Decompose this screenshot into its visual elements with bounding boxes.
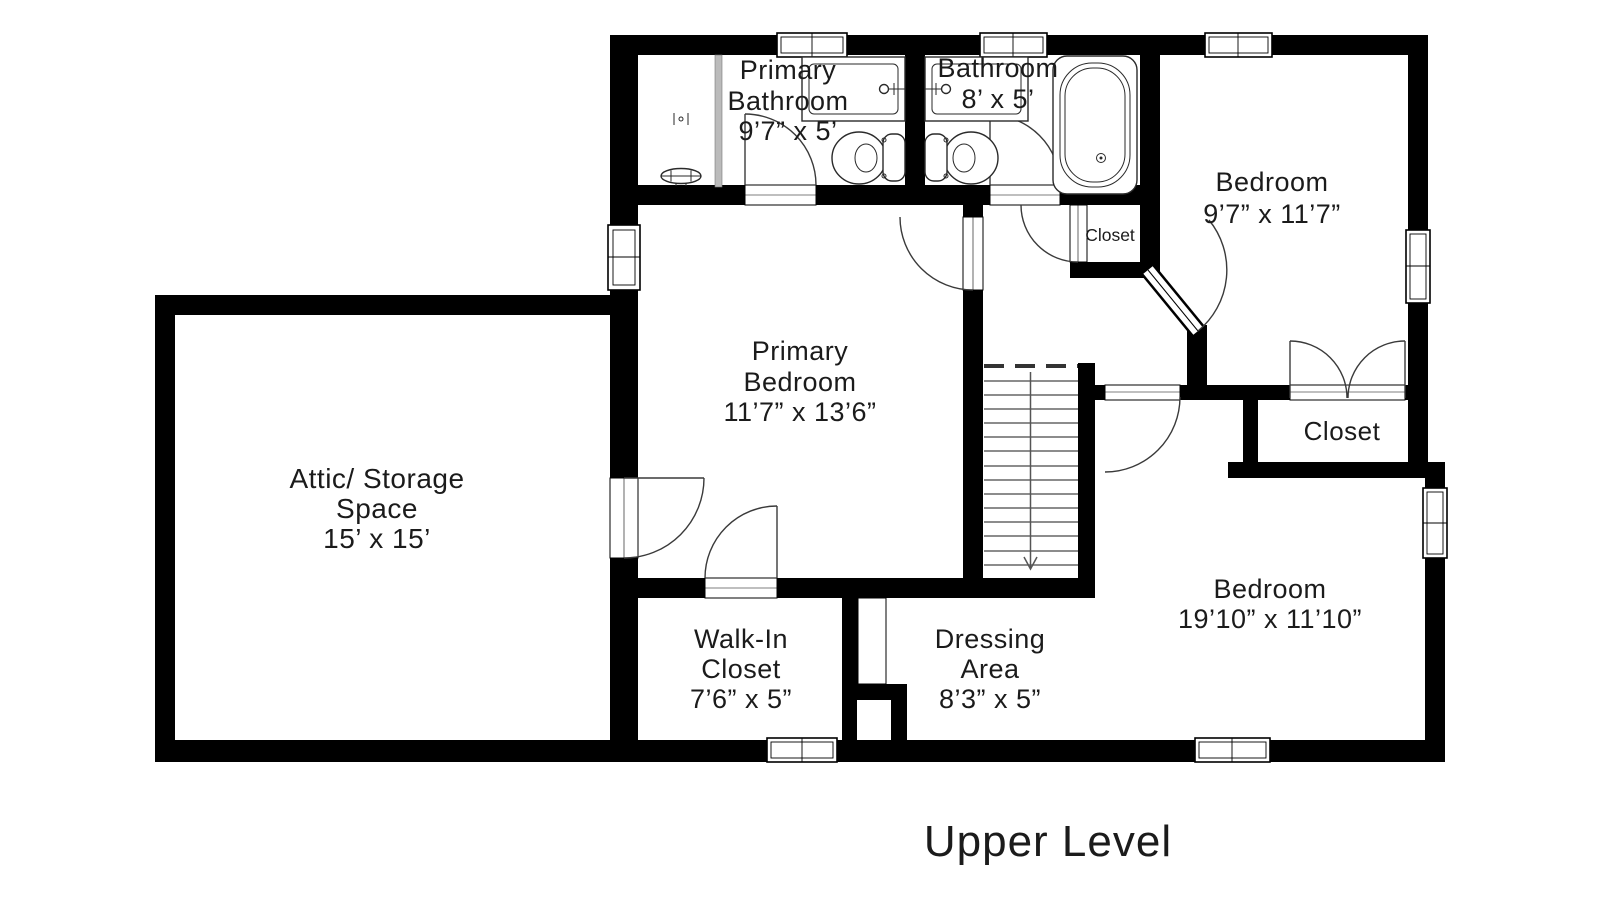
wall — [1187, 325, 1207, 400]
window-symbol — [767, 738, 837, 762]
wall — [610, 578, 1095, 598]
wall — [610, 35, 638, 740]
floor-plan: Attic/ Storage Space 15’ x 15’ Primary B… — [0, 0, 1600, 914]
chimney-flue — [857, 700, 891, 740]
floor-plan-page: Attic/ Storage Space 15’ x 15’ Primary B… — [0, 0, 1600, 914]
window-symbol — [1195, 738, 1270, 762]
window-symbol — [777, 33, 847, 57]
window-symbol — [1205, 33, 1272, 57]
room-label-bedroom-bottom: Bedroom — [1213, 574, 1326, 604]
wall — [905, 35, 925, 185]
room-dimensions: 8’3” x 5” — [939, 684, 1041, 714]
room-label-primary-bathroom: Primary — [740, 55, 837, 85]
window-symbol — [1423, 488, 1447, 558]
wall — [1228, 462, 1445, 478]
room-dimensions: 7’6” x 5” — [690, 684, 792, 714]
wall — [1078, 363, 1095, 598]
room-label-walk-in-closet: Closet — [701, 654, 781, 684]
shower-symbol — [661, 55, 722, 187]
room-label-dressing-area: Dressing — [935, 624, 1046, 654]
stairs — [984, 366, 1078, 569]
room-label-closet-right: Closet — [1304, 416, 1381, 446]
door-bedroom-bottom — [1105, 385, 1180, 472]
wall-niche — [858, 598, 886, 684]
fixtures — [661, 55, 1137, 194]
room-dimensions: 9’7” x 11’7” — [1203, 199, 1341, 229]
room-label-hall-closet: Closet — [1085, 225, 1135, 245]
window-symbol — [608, 225, 640, 290]
toilet-symbol — [832, 132, 905, 184]
door-hall-closet — [1021, 205, 1087, 262]
room-label-attic: Attic/ Storage — [289, 463, 464, 494]
room-label-attic: Space — [336, 493, 418, 524]
wall — [155, 295, 638, 315]
toilet-symbol — [925, 132, 998, 184]
shower-glass-partition — [715, 55, 722, 187]
room-label-primary-bedroom: Bedroom — [743, 367, 856, 397]
door-walk-in-closet — [705, 506, 777, 598]
room-label-dressing-area: Area — [960, 654, 1020, 684]
room-dimensions: 11’7” x 13’6” — [723, 397, 876, 427]
room-label-primary-bathroom: Bathroom — [727, 86, 848, 116]
room-dimensions: 9’7” x 5’ — [738, 116, 837, 146]
room-dimensions: 8’ x 5’ — [961, 84, 1034, 114]
bathtub-symbol — [1053, 56, 1137, 194]
room-label-primary-bedroom: Primary — [752, 336, 849, 366]
wall — [1140, 35, 1160, 277]
door-closet-bifold — [1290, 341, 1405, 400]
plan-title: Upper Level — [924, 817, 1172, 866]
window-symbol — [1406, 230, 1430, 303]
door-attic — [610, 478, 704, 558]
door-primary-bedroom — [900, 217, 983, 290]
room-label-walk-in-closet: Walk-In — [694, 624, 788, 654]
room-label-bathroom: Bathroom — [937, 53, 1058, 83]
room-label-bedroom-top: Bedroom — [1215, 167, 1328, 197]
wall — [155, 295, 175, 762]
room-dimensions: 15’ x 15’ — [323, 523, 431, 554]
wall — [1243, 385, 1258, 462]
door-bathroom — [990, 115, 1060, 205]
room-dimensions: 19’10” x 11’10” — [1178, 604, 1362, 634]
